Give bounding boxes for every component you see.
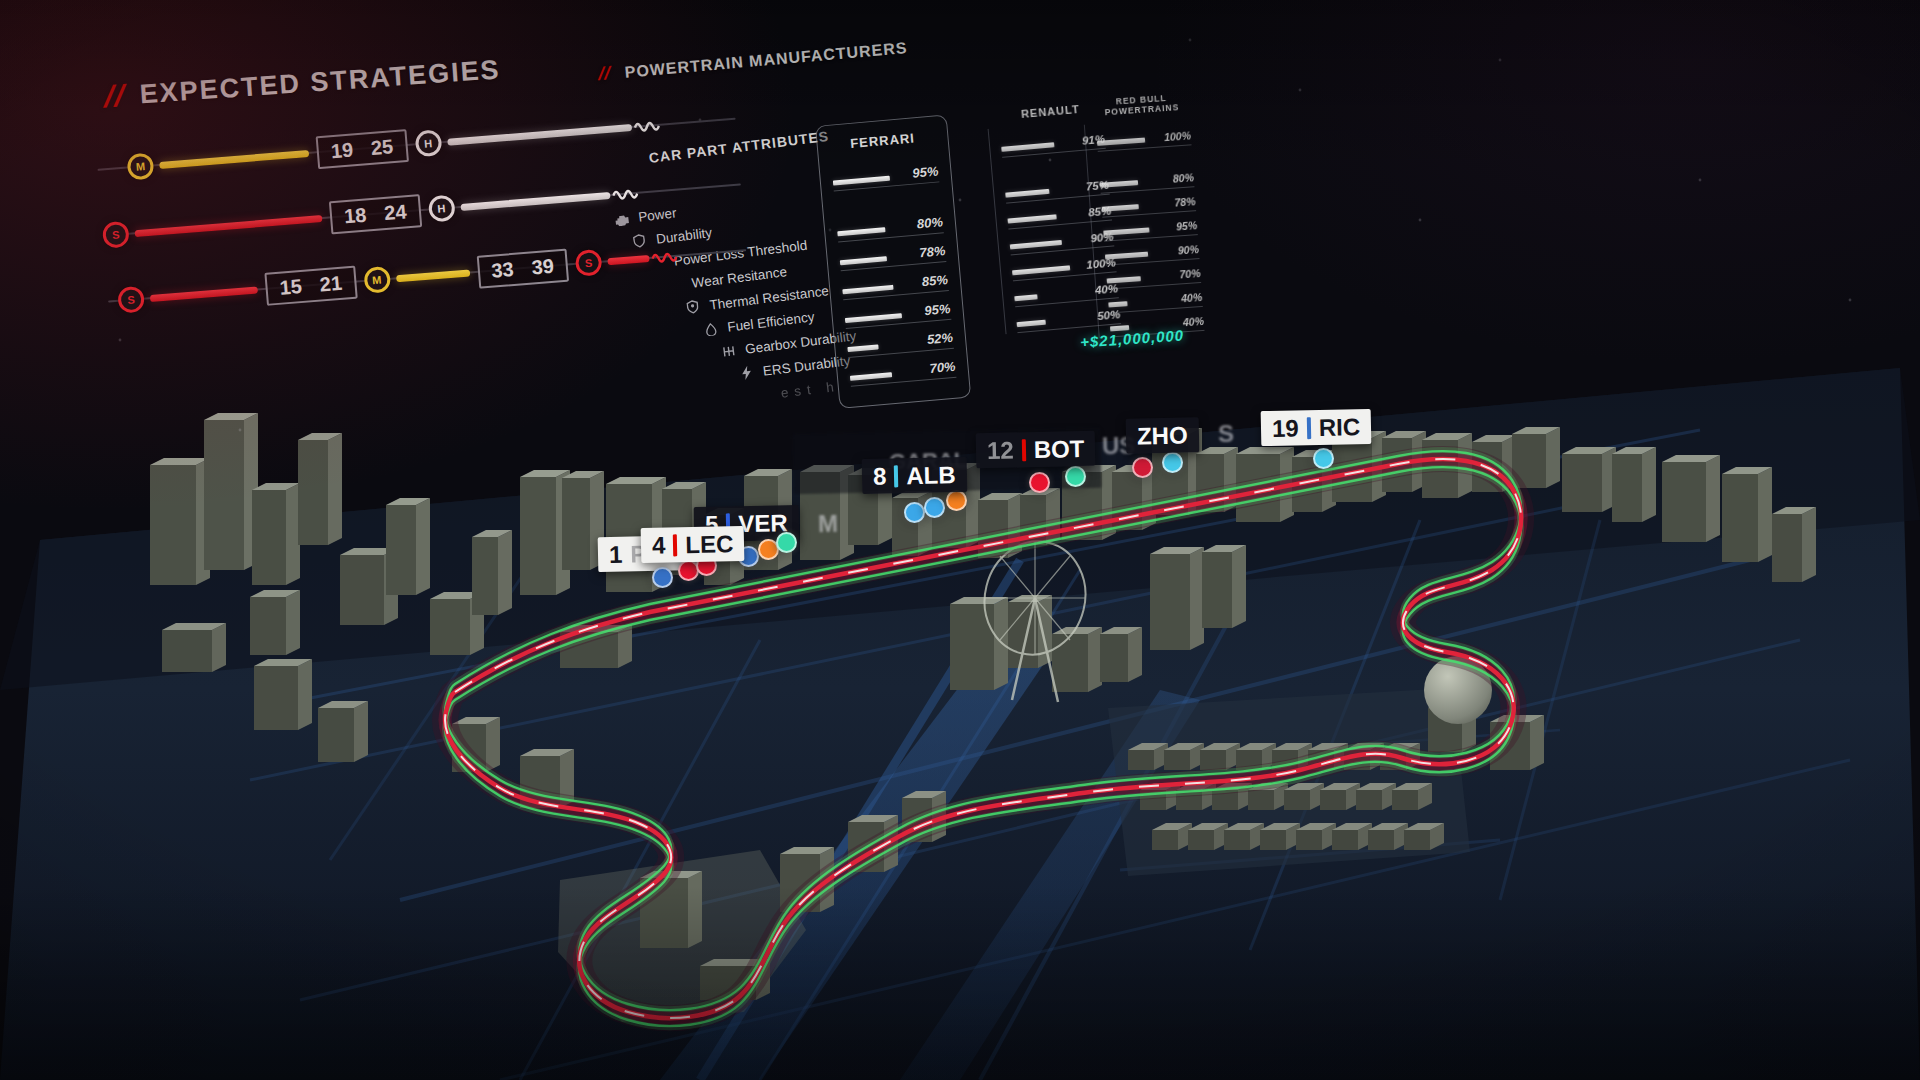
rating-fill bbox=[837, 227, 885, 236]
rating-fill bbox=[1107, 276, 1141, 283]
driver-code: ALB bbox=[906, 461, 956, 490]
driver-label-ric[interactable]: 19 RIC bbox=[1261, 409, 1372, 446]
soft-stint-bar bbox=[150, 286, 258, 302]
rating-track bbox=[1097, 138, 1145, 146]
rating-percent: 95% bbox=[1176, 219, 1198, 232]
rating-percent: 100% bbox=[1164, 129, 1192, 143]
building bbox=[318, 701, 368, 762]
pit-window-from: 18 bbox=[343, 203, 367, 228]
building bbox=[1150, 547, 1204, 650]
rating-percent: 70% bbox=[929, 359, 956, 376]
rating-percent: 80% bbox=[1172, 171, 1194, 184]
pit-window-to: 24 bbox=[383, 200, 407, 225]
rating-fill bbox=[847, 344, 879, 352]
fuel-icon bbox=[702, 321, 720, 337]
stint-end-squiggle-icon bbox=[611, 186, 638, 202]
rating-track bbox=[1103, 227, 1151, 235]
driver-code: LEC bbox=[685, 530, 734, 559]
rating-track bbox=[1012, 265, 1070, 275]
building bbox=[1562, 447, 1616, 512]
rating-track bbox=[1105, 251, 1153, 259]
soft-stint-bar bbox=[135, 215, 323, 237]
building bbox=[1404, 823, 1444, 850]
team-color-bar bbox=[894, 465, 898, 487]
rating-fill bbox=[1014, 294, 1038, 301]
stint-end-squiggle-icon bbox=[651, 249, 678, 265]
red-slashes-icon: // bbox=[101, 78, 130, 114]
gearbox-icon bbox=[719, 343, 737, 359]
pit-window-to: 25 bbox=[370, 135, 394, 160]
building bbox=[250, 590, 300, 655]
shield-icon bbox=[684, 299, 702, 315]
building bbox=[1200, 743, 1240, 770]
driver-code: ZHO bbox=[1137, 421, 1188, 450]
lightning-bolt-icon bbox=[737, 365, 755, 381]
hard-stint-bar bbox=[447, 124, 632, 146]
team-color-bar bbox=[1021, 439, 1025, 461]
rating-track bbox=[1014, 291, 1072, 301]
building bbox=[252, 483, 300, 585]
car-dot[interactable] bbox=[1313, 448, 1334, 469]
rating-track bbox=[1107, 275, 1155, 283]
pit-window-to: 39 bbox=[531, 254, 555, 279]
rating-fill bbox=[1097, 138, 1145, 146]
rating-track bbox=[1008, 214, 1066, 224]
rating-percent: 78% bbox=[1174, 195, 1196, 208]
building bbox=[1202, 545, 1246, 628]
rating-fill bbox=[1105, 252, 1148, 260]
hard-tire-icon: H bbox=[414, 129, 442, 157]
rating-track bbox=[1005, 188, 1063, 198]
driver-number: 4 bbox=[652, 531, 666, 559]
overall-rating-row: 91% bbox=[1000, 123, 1106, 158]
medium-stint-bar bbox=[395, 269, 469, 282]
building bbox=[162, 623, 226, 672]
driver-label-zho[interactable]: ZHO bbox=[1126, 417, 1199, 454]
manufacturer-card-ferrari[interactable]: FERRARI 95% 80% 78% 85% 95% 52% 70% bbox=[815, 114, 971, 408]
rating-track bbox=[1100, 179, 1148, 187]
soft-stint-bar bbox=[607, 254, 649, 264]
car-dot[interactable] bbox=[946, 490, 967, 511]
team-color-bar bbox=[673, 534, 677, 556]
building bbox=[204, 413, 258, 570]
manufacturer-card-red-bull-powertrains[interactable]: RED BULL POWERTRAINS 100% 80% 78% 95% 90… bbox=[1094, 91, 1205, 337]
building bbox=[150, 458, 210, 585]
driver-number: 8 bbox=[873, 462, 887, 490]
building bbox=[1260, 823, 1300, 850]
driver-label-lec[interactable]: 4 LEC bbox=[641, 526, 745, 563]
pit-window-box: 19 25 bbox=[316, 129, 409, 169]
rating-percent: 80% bbox=[916, 214, 943, 231]
rating-fill bbox=[845, 313, 902, 323]
rating-fill bbox=[1012, 265, 1070, 275]
overall-rating-row: 100% bbox=[1096, 121, 1191, 151]
driver-number: 12 bbox=[987, 436, 1014, 465]
rating-fill bbox=[1010, 240, 1062, 250]
rating-track bbox=[837, 226, 897, 236]
building bbox=[1224, 823, 1264, 850]
driver-label-bot[interactable]: 12 BOT bbox=[976, 431, 1096, 468]
stint-end-squiggle-icon bbox=[633, 118, 660, 134]
red-slashes-icon: // bbox=[596, 63, 613, 86]
rating-fill bbox=[1001, 142, 1054, 152]
rating-track bbox=[1108, 299, 1156, 307]
rating-percent: 40% bbox=[1181, 291, 1203, 304]
rating-track bbox=[833, 175, 893, 185]
rating-fill bbox=[842, 285, 893, 294]
pit-window-box: 33 39 bbox=[476, 248, 569, 288]
rating-percent: 40% bbox=[1182, 315, 1204, 328]
building bbox=[1284, 783, 1324, 810]
building bbox=[1722, 467, 1772, 562]
car-dot[interactable] bbox=[1065, 466, 1086, 487]
rating-fill bbox=[833, 176, 890, 186]
building bbox=[386, 498, 430, 595]
building bbox=[1100, 627, 1142, 682]
overall-rating-row: 95% bbox=[831, 153, 939, 191]
driver-code: BOT bbox=[1033, 434, 1084, 463]
building bbox=[1772, 507, 1816, 582]
rating-track bbox=[845, 313, 905, 323]
medium-stint-bar bbox=[159, 149, 309, 168]
medium-tire-icon: M bbox=[126, 152, 154, 180]
pit-window-to: 21 bbox=[319, 271, 343, 296]
building bbox=[298, 433, 342, 545]
rating-track bbox=[850, 371, 910, 381]
building bbox=[1662, 455, 1720, 542]
driver-number: 19 bbox=[1272, 414, 1299, 443]
no-icon bbox=[755, 387, 773, 403]
car-dot[interactable] bbox=[1132, 457, 1153, 478]
soft-tire-icon: S bbox=[102, 221, 130, 249]
car-dot[interactable] bbox=[924, 497, 945, 518]
soft-tire-icon: S bbox=[117, 286, 145, 314]
building bbox=[1188, 823, 1228, 850]
building bbox=[1128, 743, 1168, 770]
rating-percent: 95% bbox=[924, 301, 951, 318]
rating-percent: 52% bbox=[926, 330, 953, 347]
rating-percent: 90% bbox=[1177, 243, 1199, 256]
pit-window-from: 19 bbox=[330, 138, 354, 163]
soft-tire-icon: S bbox=[575, 249, 603, 277]
rating-track bbox=[842, 284, 902, 294]
rating-track bbox=[1017, 317, 1075, 327]
pit-window-from: 33 bbox=[491, 257, 515, 282]
hard-stint-bar bbox=[460, 191, 610, 210]
rating-fill bbox=[840, 256, 887, 265]
building bbox=[1152, 823, 1192, 850]
building bbox=[1612, 447, 1656, 522]
building bbox=[472, 530, 512, 615]
building bbox=[1356, 783, 1396, 810]
car-dot[interactable] bbox=[1029, 472, 1050, 493]
rating-fill bbox=[1008, 214, 1058, 223]
building bbox=[1296, 823, 1336, 850]
manufacturer-name: FERRARI bbox=[829, 129, 936, 153]
car-dot[interactable] bbox=[904, 502, 925, 523]
car-dot[interactable] bbox=[652, 567, 673, 588]
rating-fill bbox=[1005, 189, 1049, 198]
building bbox=[1332, 823, 1372, 850]
rating-percent: 95% bbox=[912, 163, 939, 180]
hard-tire-icon: H bbox=[427, 194, 455, 222]
car-dot[interactable] bbox=[776, 532, 797, 553]
building bbox=[950, 597, 1008, 690]
building bbox=[1052, 627, 1102, 692]
pit-window-box: 18 24 bbox=[329, 194, 422, 234]
building bbox=[1008, 595, 1052, 668]
attribute-label-fragment: est h bbox=[780, 378, 841, 400]
pit-window-from: 15 bbox=[279, 274, 303, 299]
rating-track bbox=[1010, 239, 1068, 249]
pit-window-box: 15 21 bbox=[264, 265, 357, 305]
building bbox=[1320, 783, 1360, 810]
rating-fill bbox=[1108, 301, 1127, 307]
rating-fill bbox=[850, 372, 892, 381]
rating-percent: 85% bbox=[921, 272, 948, 289]
rating-fill bbox=[1100, 180, 1139, 188]
rating-track bbox=[847, 342, 907, 352]
car-dot[interactable] bbox=[1162, 452, 1183, 473]
driver-code: RIC bbox=[1318, 413, 1360, 442]
building bbox=[1164, 743, 1204, 770]
building bbox=[1392, 783, 1432, 810]
driver-number: 1 bbox=[609, 540, 623, 568]
rating-fill bbox=[1103, 227, 1149, 235]
medium-tire-icon: M bbox=[363, 266, 391, 294]
occluded-label-fragment: M bbox=[818, 510, 839, 538]
team-color-bar bbox=[1306, 417, 1310, 439]
rating-track bbox=[840, 255, 900, 265]
building bbox=[254, 659, 312, 730]
rating-percent: 70% bbox=[1179, 267, 1201, 280]
rating-track bbox=[1001, 142, 1059, 152]
column-rule: 100% 80% 78% 95% 90% 70% 40% 40% bbox=[1096, 121, 1204, 337]
rating-fill bbox=[1102, 204, 1140, 212]
building bbox=[1368, 823, 1408, 850]
driver-label-alb[interactable]: 8 ALB bbox=[862, 457, 967, 494]
rating-track bbox=[1102, 203, 1150, 211]
rating-fill bbox=[1017, 320, 1046, 328]
occluded-label-fragment: S bbox=[1218, 420, 1235, 448]
rating-percent: 78% bbox=[919, 243, 946, 260]
f1-race-map-screen: // EXPECTED STRATEGIES M 19 25 H S 18 24 bbox=[0, 0, 1920, 1080]
